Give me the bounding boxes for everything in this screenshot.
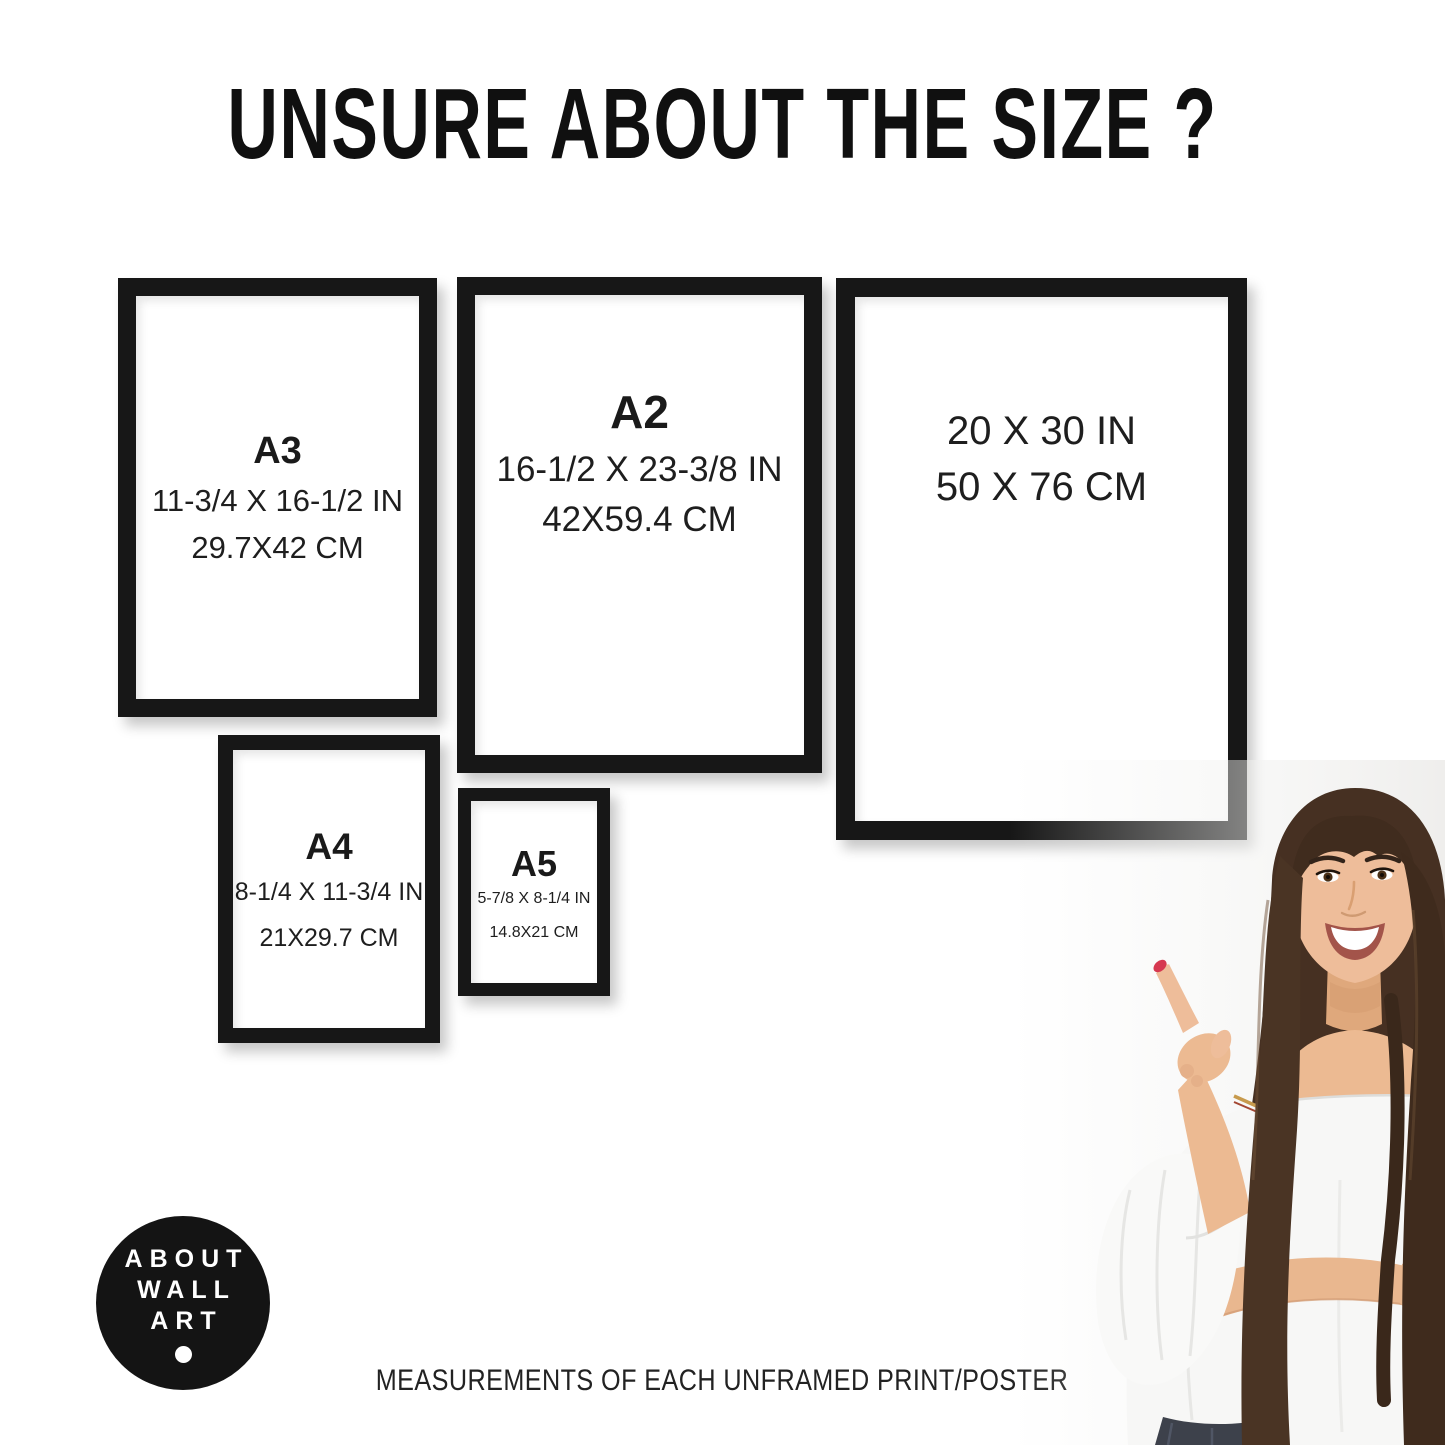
frame-20x30: 20 X 30 IN 50 X 76 CM [836, 278, 1247, 840]
logo-line-1: ABOUT [118, 1244, 249, 1275]
size-cm-a2: 42X59.4 CM [497, 499, 783, 541]
frame-a3: A3 11-3/4 X 16-1/2 IN 29.7X42 CM [118, 278, 437, 717]
frame-a4-label: A4 8-1/4 X 11-3/4 IN 21X29.7 CM [235, 825, 424, 953]
size-cm-a5: 14.8X21 CM [478, 923, 591, 942]
size-cm-a3: 29.7X42 CM [152, 529, 403, 566]
frame-a2-label: A2 16-1/2 X 23-3/8 IN 42X59.4 CM [497, 385, 783, 540]
logo-line-3: ART [143, 1306, 222, 1337]
frame-a3-label: A3 11-3/4 X 16-1/2 IN 29.7X42 CM [152, 429, 403, 567]
size-inches-a2: 16-1/2 X 23-3/8 IN [497, 449, 783, 491]
frame-a5: A5 5-7/8 X 8-1/4 IN 14.8X21 CM [458, 788, 610, 996]
size-inches-a5: 5-7/8 X 8-1/4 IN [478, 889, 591, 908]
footer-caption: MEASUREMENTS OF EACH UNFRAMED PRINT/POST… [376, 1364, 940, 1398]
size-inches-a3: 11-3/4 X 16-1/2 IN [152, 482, 403, 519]
woman-pointing-photo [950, 760, 1445, 1445]
size-name-a3: A3 [152, 429, 403, 475]
frame-a5-label: A5 5-7/8 X 8-1/4 IN 14.8X21 CM [478, 842, 591, 942]
frame-a4: A4 8-1/4 X 11-3/4 IN 21X29.7 CM [218, 735, 440, 1043]
poster-size-guide: UNSURE ABOUT THE SIZE ? A3 11-3/4 X 16-1… [0, 0, 1445, 1445]
size-inches-a4: 8-1/4 X 11-3/4 IN [235, 877, 424, 907]
size-name-a4: A4 [235, 825, 424, 869]
frame-a2: A2 16-1/2 X 23-3/8 IN 42X59.4 CM [457, 277, 822, 773]
size-cm-a4: 21X29.7 CM [235, 923, 424, 953]
frame-20x30-label: 20 X 30 IN 50 X 76 CM [936, 407, 1147, 511]
size-name-a5: A5 [478, 842, 591, 885]
logo-dot [175, 1346, 192, 1363]
about-wall-art-logo: ABOUT WALL ART [96, 1216, 270, 1390]
size-name-a2: A2 [497, 385, 783, 440]
logo-line-2: WALL [130, 1275, 236, 1306]
size-inches-20x30: 20 X 30 IN [936, 407, 1147, 455]
size-cm-20x30: 50 X 76 CM [936, 463, 1147, 511]
page-title: UNSURE ABOUT THE SIZE ? [217, 72, 1229, 177]
